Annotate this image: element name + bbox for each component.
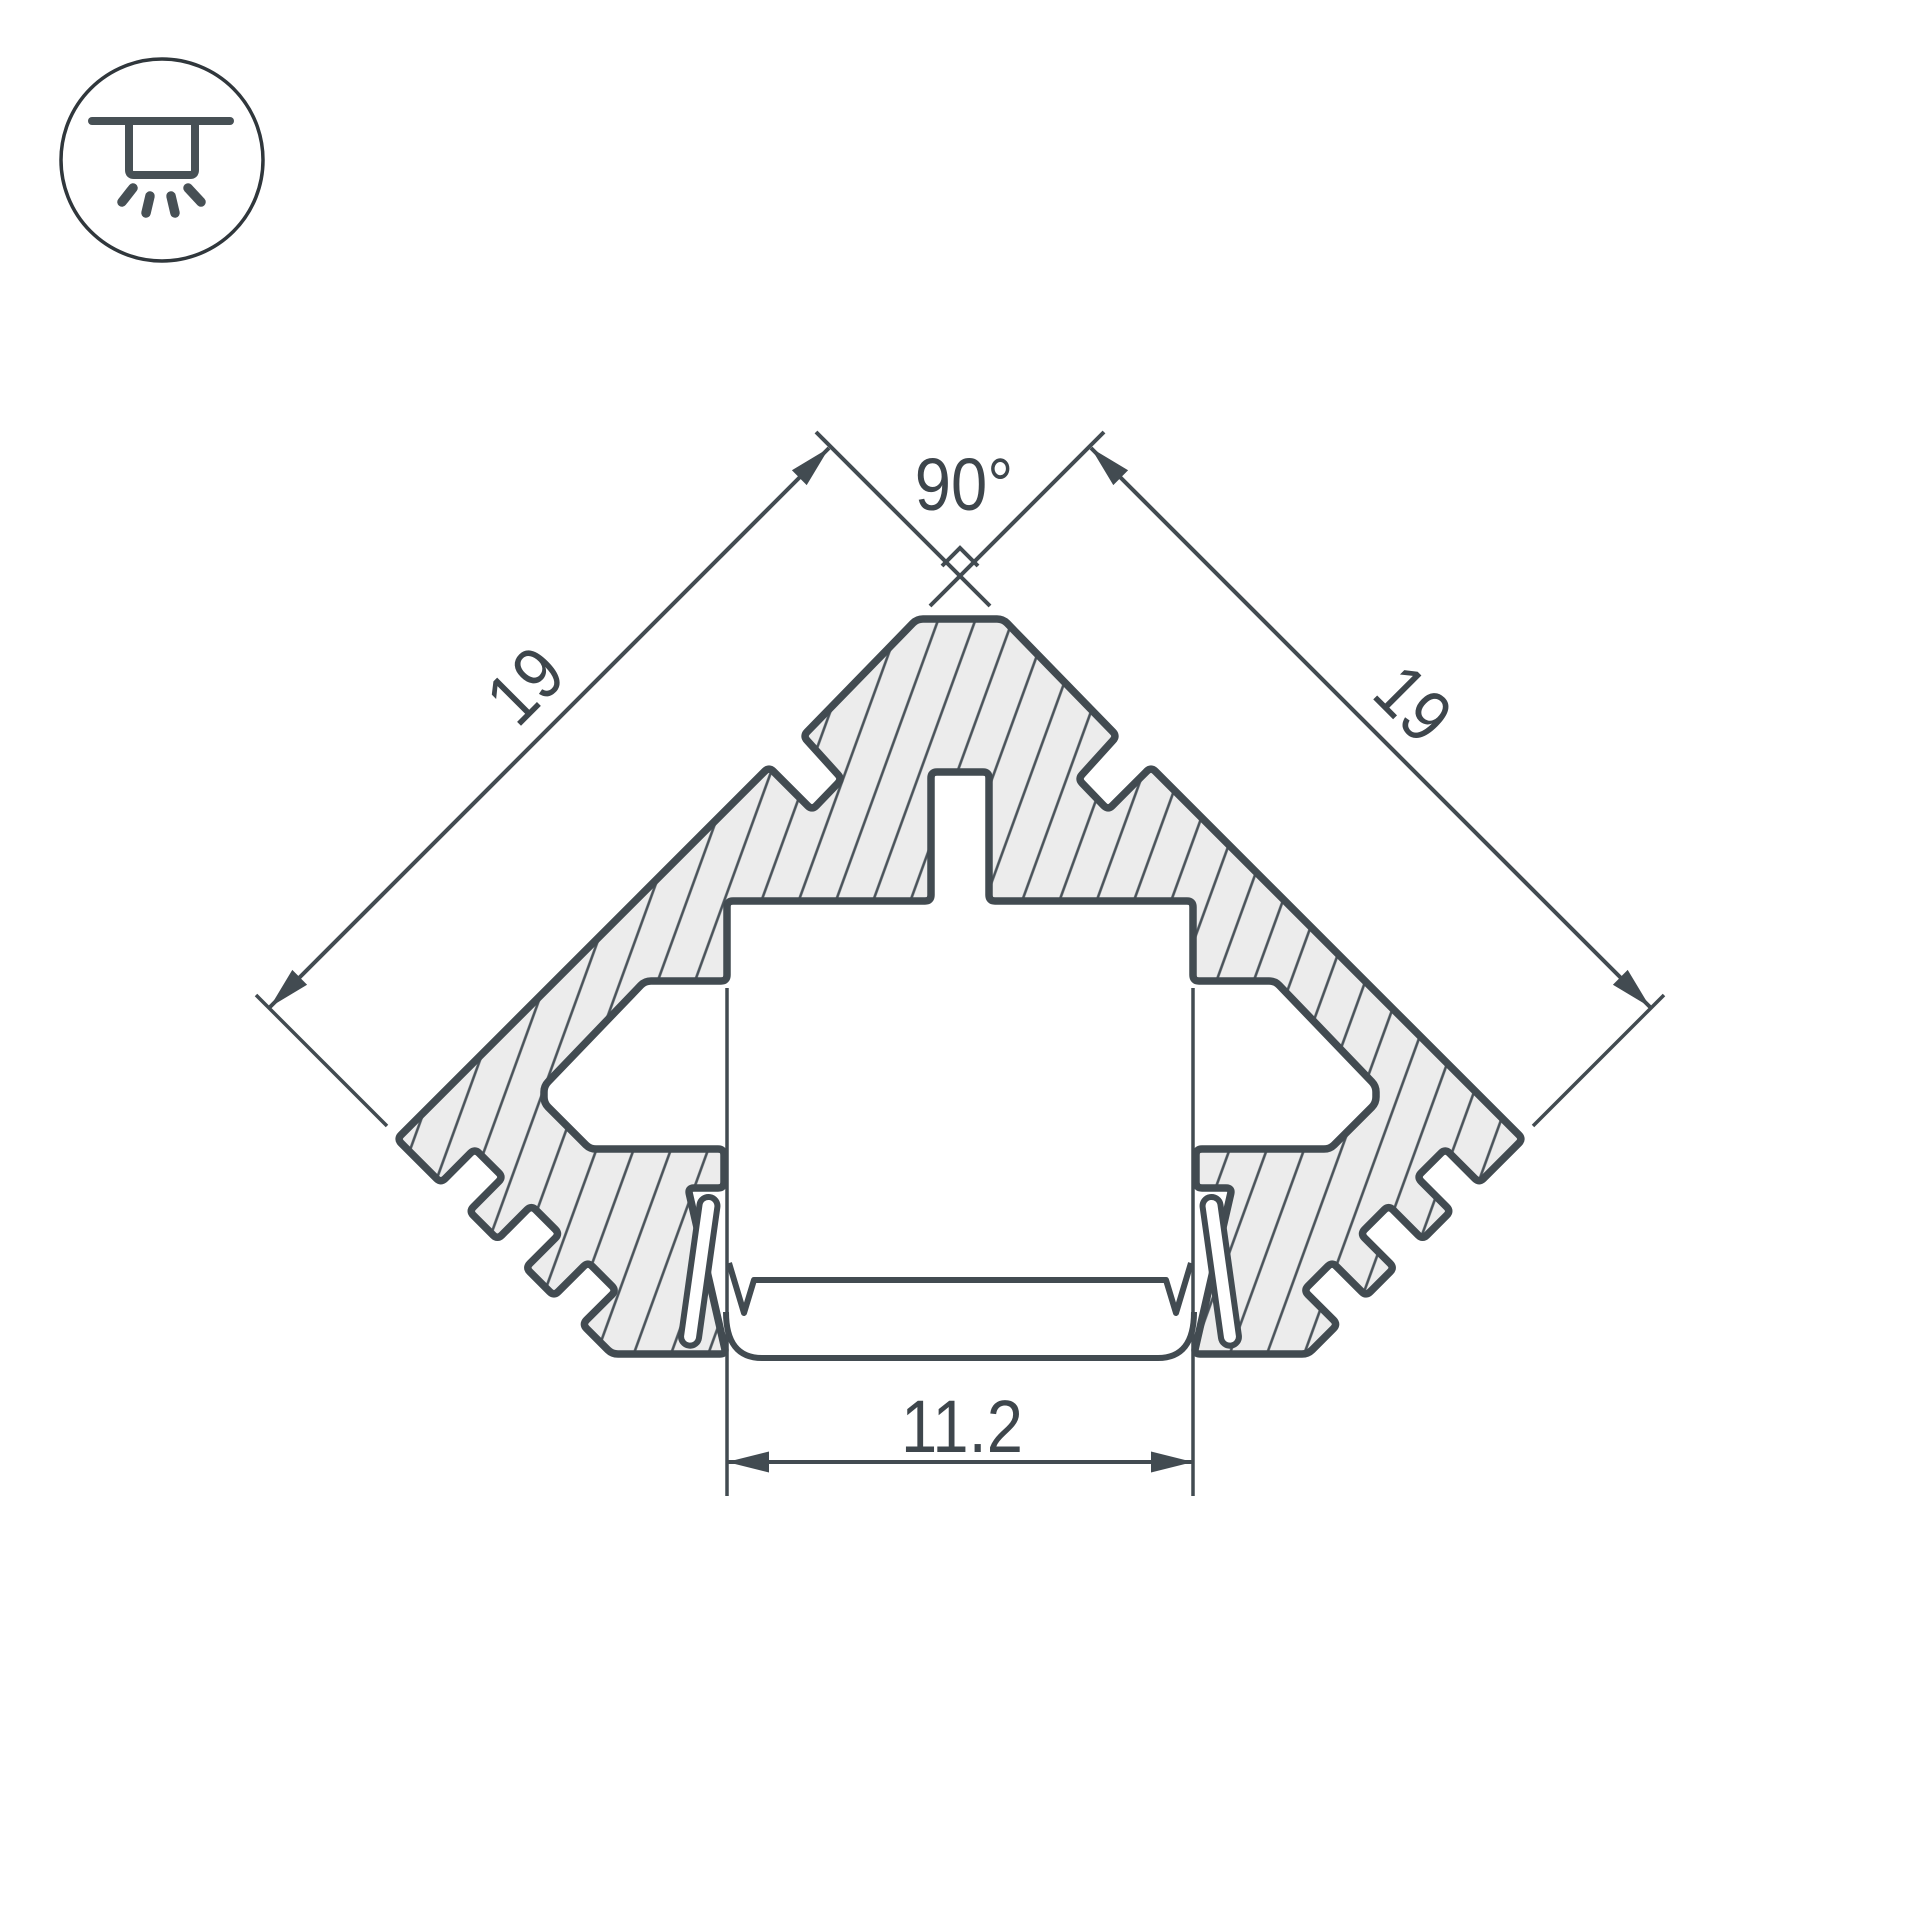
svg-text:90°: 90° xyxy=(915,443,1013,526)
svg-text:11.2: 11.2 xyxy=(901,1385,1023,1468)
